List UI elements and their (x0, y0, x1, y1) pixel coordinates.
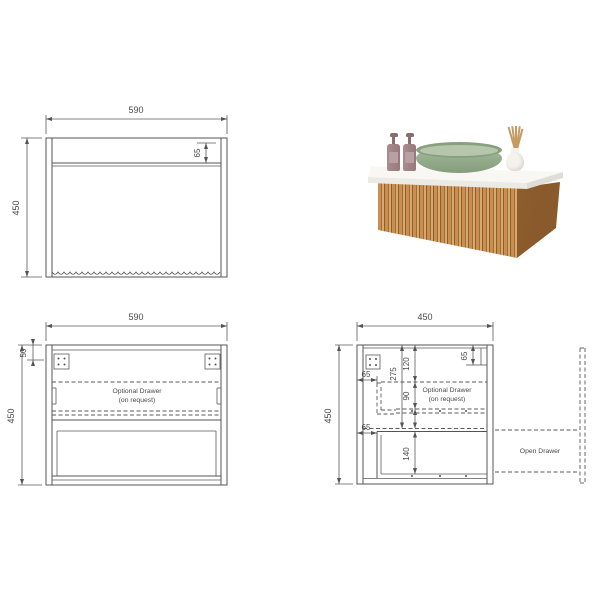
wall-bracket-left (54, 354, 69, 369)
front-view: 590 450 65 (11, 105, 227, 277)
basin-inner (420, 145, 498, 156)
soap-pump-stem (408, 137, 411, 144)
side-275-dim: 275 (389, 367, 398, 381)
front-open-view: Optional Drawer (on request) 590 450 50 (6, 312, 227, 485)
side-inset-upper-dim: 65 (362, 370, 371, 379)
front-height-dim: 450 (11, 200, 21, 215)
technical-drawing-layer: 590 450 65 Op (0, 0, 600, 600)
open-toprail-dim: 50 (19, 348, 28, 357)
side-depth-dim: 450 (417, 312, 432, 322)
front-toprail-dim: 65 (193, 148, 202, 157)
open-height-dim: 450 (6, 408, 16, 423)
optional-drawer-note-1: Optional Drawer (112, 388, 162, 395)
open-width-dim: 590 (128, 312, 143, 322)
side-90-dim: 90 (402, 391, 411, 400)
soap-bottle-label (405, 152, 414, 163)
side-view: Optional Drawer (on request) 450 450 275… (323, 312, 585, 484)
soap-bottle-label (389, 152, 398, 163)
fluted-door-scallop (52, 272, 220, 274)
soap-pump-stem (392, 137, 395, 144)
diffuser-vase (506, 152, 524, 171)
front-width-dim: 590 (128, 105, 143, 115)
side-optional-drawer-note-1: Optional Drawer (422, 387, 472, 394)
side-120-dim: 120 (402, 357, 411, 371)
side-backrail-dim: 65 (460, 351, 469, 360)
side-140-dim: 140 (402, 447, 411, 461)
optional-drawer-note-2: (on request) (119, 397, 156, 404)
side-optional-drawer-note-2: (on request) (429, 396, 466, 403)
open-drawer-label: Open Drawer (520, 448, 561, 455)
wall-bracket-right (205, 354, 220, 369)
side-inset-lower-dim: 65 (362, 423, 371, 432)
side-height-dim: 450 (323, 408, 333, 423)
product-photo (350, 105, 590, 290)
wall-bracket-side (366, 355, 380, 369)
